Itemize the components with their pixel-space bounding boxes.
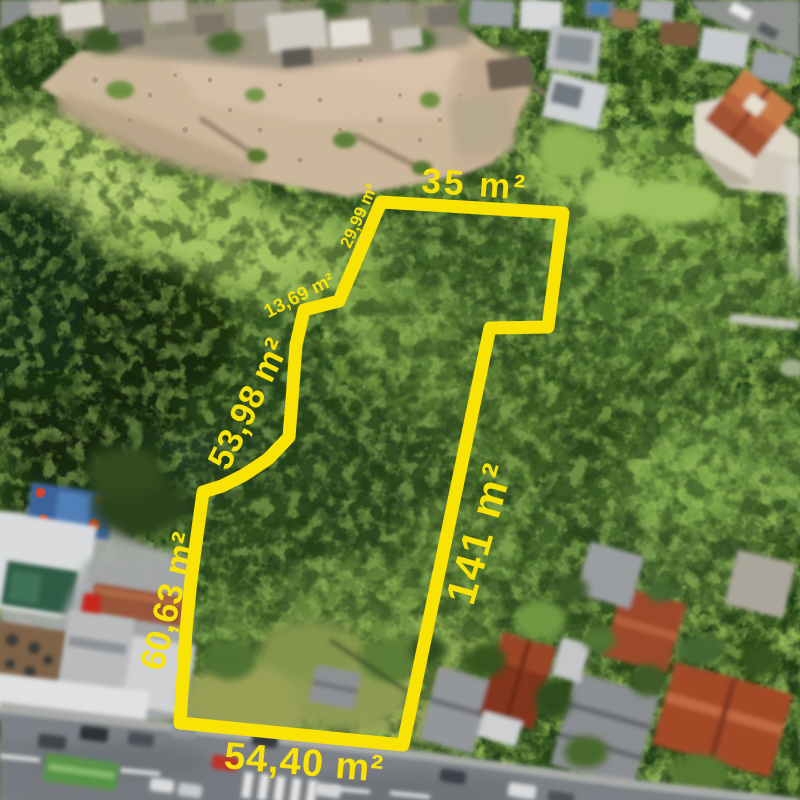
svg-text:35 m²: 35 m²: [420, 161, 529, 207]
